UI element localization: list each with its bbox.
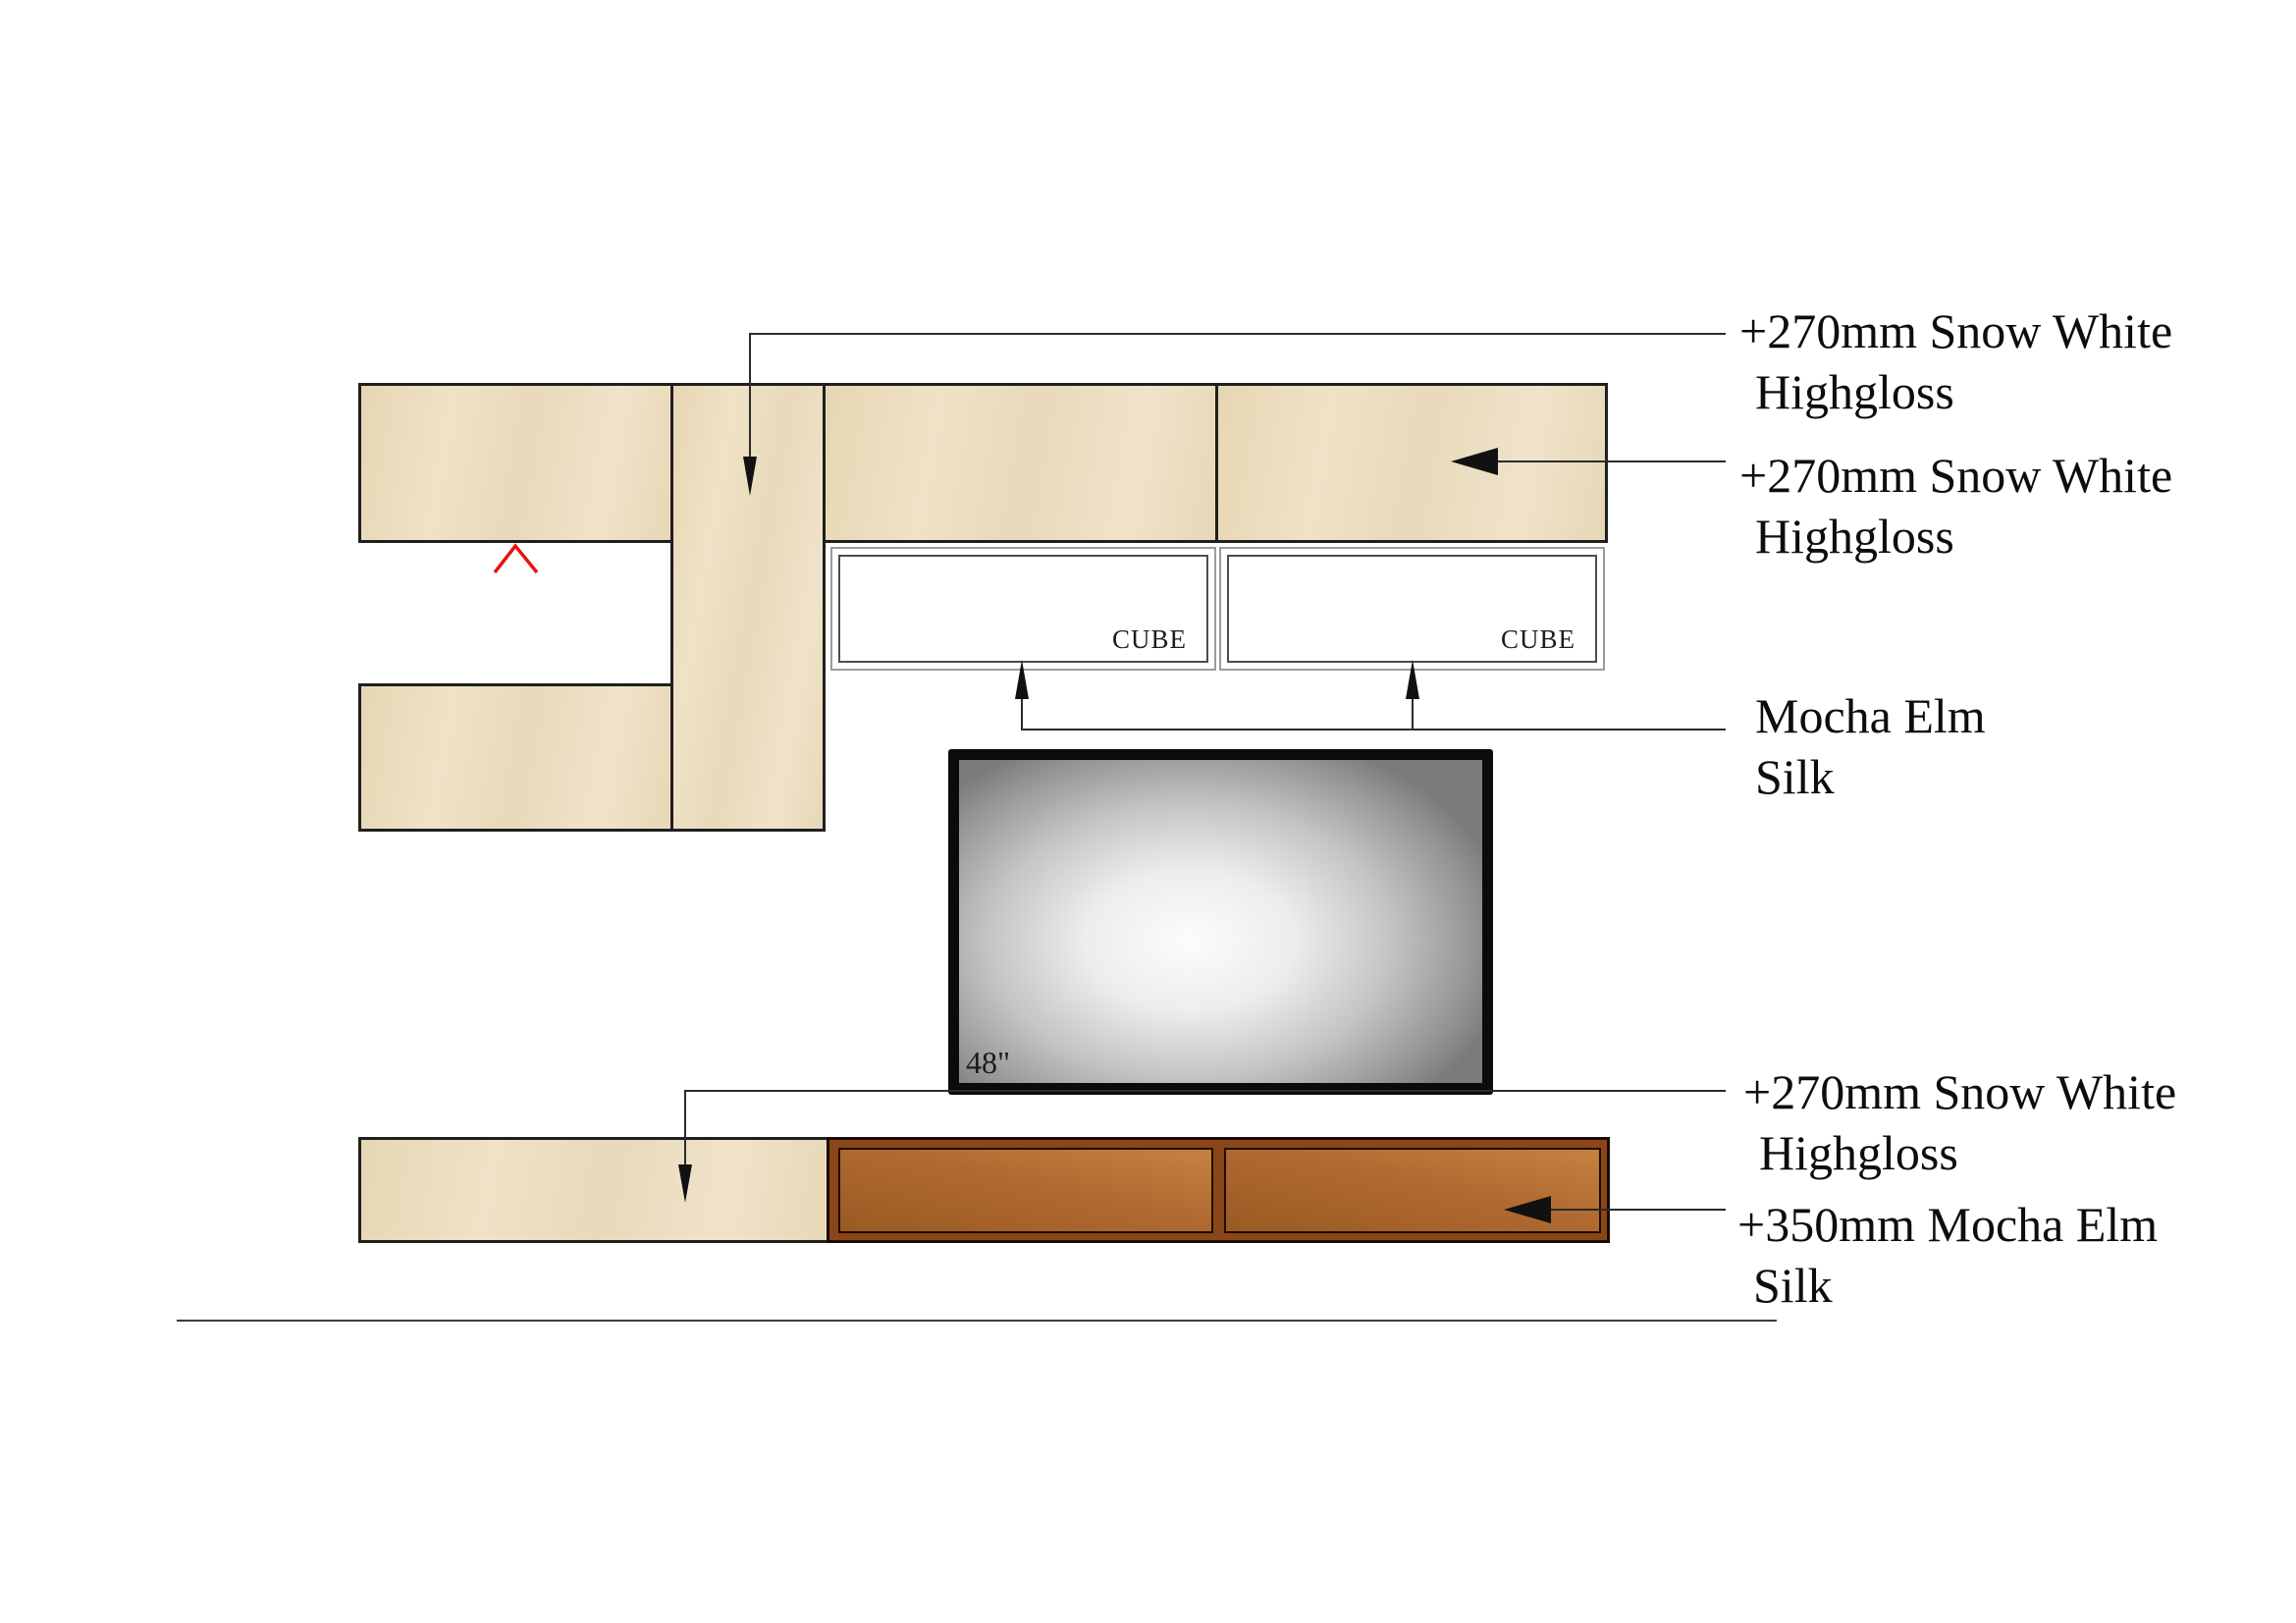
- annotation-cube-shelves: Mocha Elm Silk: [1755, 685, 1986, 807]
- vertical-panel: [670, 383, 826, 832]
- tv-screen: [959, 760, 1482, 1083]
- top-right-cabinet: [1215, 383, 1608, 543]
- tv-size-label: 48": [966, 1045, 1010, 1081]
- bottom-mocha-unit: [827, 1137, 1610, 1243]
- annotation-top-right-cabinet: +270mm Snow White Highgloss: [1739, 445, 2172, 567]
- annotation-line: +270mm Snow White: [1743, 1064, 2176, 1119]
- leader-cube-shelves: [1022, 670, 1726, 730]
- annotation-bottom-mocha: +350mm Mocha Elm Silk: [1737, 1194, 2158, 1316]
- annotation-line: +270mm Snow White: [1739, 303, 2172, 358]
- cube-shelf-right: CUBE: [1219, 547, 1605, 671]
- annotation-line: Mocha Elm: [1755, 688, 1986, 743]
- ground-line: [177, 1320, 1777, 1322]
- annotation-line: Silk: [1755, 746, 1986, 807]
- bottom-cream-cabinet: [358, 1137, 829, 1243]
- cube-shelf-left-inner: CUBE: [838, 555, 1208, 663]
- annotation-line: Silk: [1753, 1255, 2158, 1316]
- cube-left-label: CUBE: [1112, 624, 1187, 655]
- cube-shelf-left: CUBE: [830, 547, 1216, 671]
- red-caret-marker: [495, 546, 537, 572]
- annotation-bottom-cream: +270mm Snow White Highgloss: [1743, 1061, 2176, 1183]
- elevation-drawing: CUBE CUBE 48": [0, 0, 2296, 1623]
- tv-48-inch: 48": [948, 749, 1493, 1095]
- top-middle-cabinet: [823, 383, 1218, 543]
- annotation-line: Highgloss: [1755, 506, 2172, 567]
- cube-shelf-right-inner: CUBE: [1227, 555, 1597, 663]
- annotation-line: +350mm Mocha Elm: [1737, 1197, 2158, 1252]
- annotation-top-panel: +270mm Snow White Highgloss: [1739, 300, 2172, 422]
- bottom-left-wall-cabinet: [358, 683, 673, 832]
- annotation-line: Highgloss: [1759, 1122, 2176, 1183]
- cube-right-label: CUBE: [1501, 624, 1575, 655]
- top-left-cabinet: [358, 383, 673, 543]
- annotation-line: +270mm Snow White: [1739, 448, 2172, 503]
- annotation-line: Highgloss: [1755, 361, 2172, 422]
- mocha-door-right: [1224, 1148, 1601, 1233]
- mocha-door-left: [838, 1148, 1213, 1233]
